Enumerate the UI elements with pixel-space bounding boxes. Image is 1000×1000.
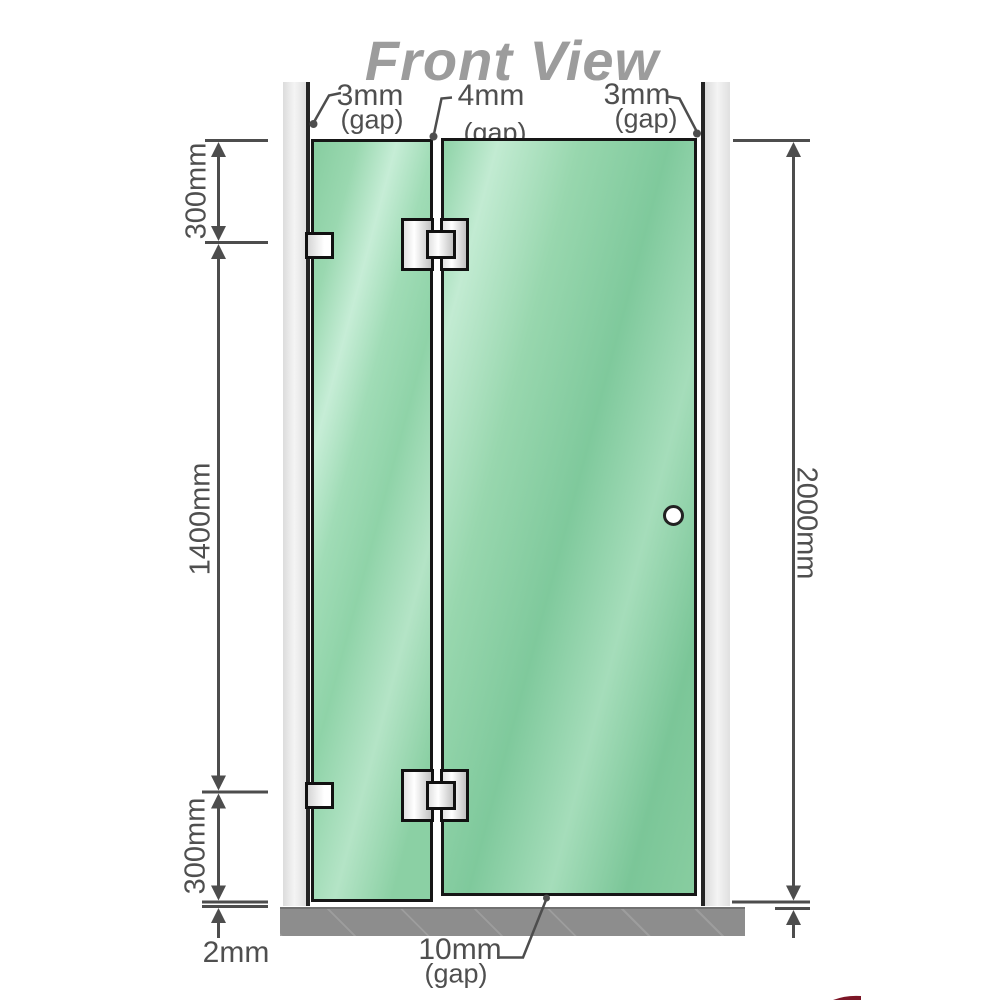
bottom-hinge-tab [426,781,456,810]
gap-label-top-right-unit: (gap) [614,104,677,135]
floor-base [280,907,745,936]
dim-left-middle: 1400mm [185,463,218,576]
dim-left-bottom: 300mm [180,798,213,895]
top-hinge [401,218,469,271]
dim-bottom-left: 2mm [203,936,270,970]
bottom-hinge [401,769,469,822]
red-corner-mark [833,996,861,1000]
gap-label-top-left-unit: (gap) [340,105,403,136]
bottom-wall-bracket [305,782,334,809]
right-wall-channel [705,82,730,906]
dim-right: 2000mm [790,467,823,580]
gap-label-bottom-unit: (gap) [424,959,487,990]
door-knob [663,505,684,526]
top-hinge-tab [426,230,456,259]
gap-label-top-middle: 4mm [458,79,525,113]
left-wall-channel [283,82,306,906]
dim-left-top: 300mm [181,143,214,240]
door-glass-panel [441,138,697,896]
front-view-diagram: Front View (gap) [0,0,1000,1000]
top-wall-bracket [305,232,334,259]
